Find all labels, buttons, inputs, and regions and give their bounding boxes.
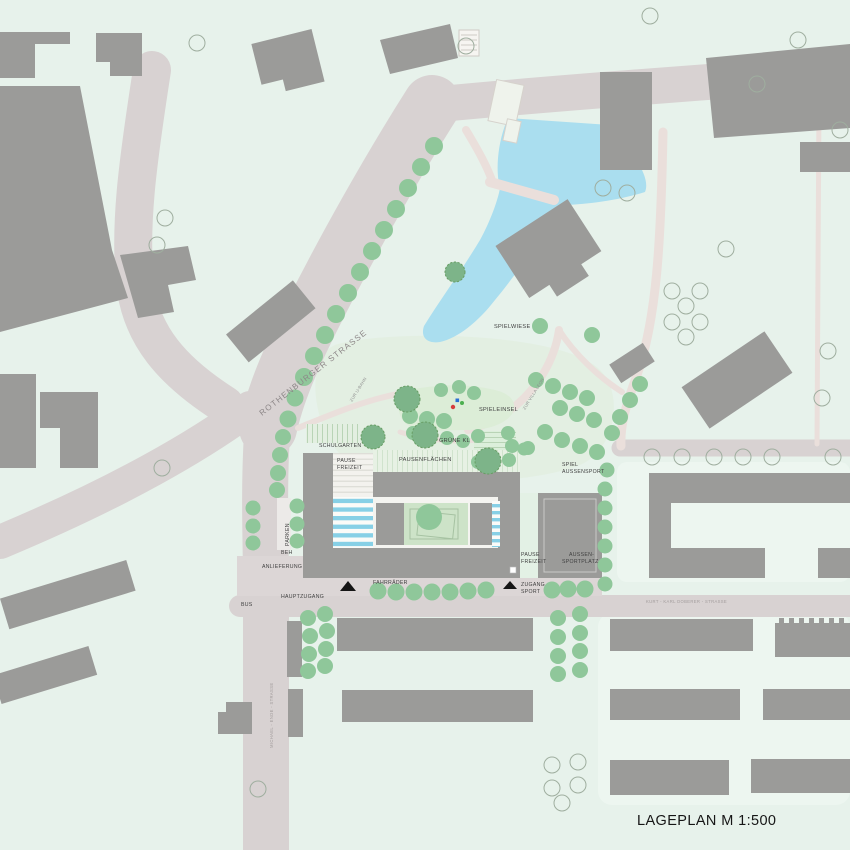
tree-icon [598,482,613,497]
tree-icon [290,517,305,532]
large-tree-icon [361,425,385,449]
tree-icon [467,386,481,400]
building [800,142,850,172]
tree-icon [569,406,585,422]
tree-icon [388,584,405,601]
tree-icon [584,327,600,343]
tree-icon [363,242,381,260]
building [288,689,303,737]
tree-icon [351,263,369,281]
tree-icon [471,429,485,443]
site-plan-map: ROTHENBURGER STRASSE KURT - KARL DOBERER… [0,0,850,850]
tree-icon [604,425,620,441]
tree-icon [550,666,566,682]
tree-icon [318,641,334,657]
tree-icon [406,584,423,601]
label-beh: BEH [281,550,293,556]
tree-icon [272,447,288,463]
building [337,618,533,651]
area-label-spielwiese: SPIELWIESE [494,324,530,330]
building [818,548,850,578]
tree-icon [317,658,333,674]
tree-icon [301,646,317,662]
label-zugang-sport-b: SPORT [521,589,541,595]
area-label-spiel-aussensport-a: SPIEL [562,462,578,468]
area-label-spiel-aussensport-b: AUSSENSPORT [562,469,605,475]
tree-icon [319,623,335,639]
street-label-kurt-karl-doberer: KURT - KARL DOBERER - STRASSE [646,599,727,604]
label-fahrraeder: FAHRRÄDER [373,579,408,586]
label-zugang-sport-a: ZUGANG [521,582,545,588]
area-label-gruene-kl: GRÜNE KL [439,437,470,444]
street-label-michael-ende: MICHAEL - ENDE - STRASSE [269,683,274,748]
building [751,759,850,793]
building [600,72,652,170]
tree-icon [425,137,443,155]
tree-icon [545,378,561,394]
tree-icon [327,305,345,323]
small-structure-ladder [459,30,479,56]
building [610,760,729,795]
plan-scale-title: LAGEPLAN M 1:500 [637,813,776,829]
tree-icon [550,648,566,664]
tree-icon [412,158,430,176]
tree-icon [300,663,316,679]
courtyard-block-west [376,503,404,545]
tree-icon [436,413,452,429]
tree-icon [537,424,553,440]
tree-icon [269,482,285,498]
small-kiosk [510,567,516,573]
schulgarten-hatch [306,424,358,443]
school-west-wing [303,453,333,578]
tree-icon [375,221,393,239]
tree-icon [280,411,297,428]
tree-icon [598,558,613,573]
tree-icon [452,380,466,394]
tree-icon [460,583,477,600]
area-label-pause-2a: PAUSE [521,552,540,558]
label-hauptzugang: HAUPTZUGANG [281,594,324,600]
area-label-schulgarten: SCHULGARTEN [319,443,361,449]
tree-icon [572,662,588,678]
tree-icon [270,465,286,481]
area-label-pause-1b: FREIZEIT [337,465,363,471]
tree-icon [612,409,628,425]
play-marker-green [460,401,464,405]
area-label-aussen-sportplatz-b: SPORTPLATZ [562,559,599,565]
building [775,618,850,657]
tree-icon [290,534,305,549]
courtyard-tree-icon [416,504,442,530]
tree-icon [532,318,548,334]
tree-icon [586,412,602,428]
large-tree-icon [412,422,438,448]
tree-icon [632,376,648,392]
tree-icon [246,536,261,551]
play-marker-blue [456,399,460,403]
large-tree-icon [475,448,501,474]
tree-icon [550,629,566,645]
area-label-aussen-sportplatz-a: AUSSEN- [569,552,594,558]
building [610,689,740,720]
tree-icon [572,606,588,622]
area-label-pause-1a: PAUSE [337,458,356,464]
area-label-spieleinsel: SPIELEINSEL [479,407,518,413]
label-anlieferung: ANLIEFERUNG [262,564,302,570]
tree-icon [598,577,613,592]
building [763,689,850,720]
tree-icon [478,582,495,599]
area-label-pause-2b: FREIZEIT [521,559,547,565]
tree-icon [572,643,588,659]
tree-icon [290,499,305,514]
building [0,374,36,468]
building [287,621,302,677]
tree-icon [424,584,441,601]
tree-icon [518,443,531,456]
tree-icon [442,584,459,601]
tree-icon [552,400,568,416]
tree-icon [550,610,566,626]
tree-icon [544,582,561,599]
building [610,619,753,651]
tree-icon [387,200,405,218]
tree-icon [317,606,333,622]
courtyard-block-east [470,503,492,545]
tree-icon [554,432,570,448]
school-glass-roof-east-stripes [492,501,500,547]
tree-icon [622,392,638,408]
pause-freizeit-strip [520,493,538,578]
tree-icon [577,581,594,598]
area-label-pausenflaechen: PAUSENFLÄCHEN [399,456,452,463]
tree-icon [579,390,595,406]
tree-icon [434,383,448,397]
large-tree-icon [445,262,465,282]
site-plan-page: ROTHENBURGER STRASSE KURT - KARL DOBERER… [0,0,850,850]
aussen-sportplatz-field [538,493,602,578]
tree-icon [505,439,519,453]
school-glass-roof-west-stripes [333,497,373,548]
label-parken: PARKEN [285,523,291,546]
tree-icon [598,520,613,535]
tree-icon [302,628,318,644]
tree-icon [275,429,291,445]
tree-icon [300,610,316,626]
tree-icon [598,539,613,554]
tree-icon [339,284,357,302]
tree-icon [572,438,588,454]
tree-icon [572,625,588,641]
large-tree-icon [394,386,420,412]
tree-icon [589,444,605,460]
tree-icon [246,519,261,534]
building [342,690,533,722]
tree-icon [502,453,516,467]
tree-icon [598,501,613,516]
tree-icon [399,179,417,197]
label-bus: BUS [241,602,253,608]
tree-icon [562,384,578,400]
tree-icon [560,581,577,598]
tree-icon [246,501,261,516]
tree-icon [501,426,515,440]
tree-icon [316,326,334,344]
play-marker-red [451,405,455,409]
school-south-wing [333,548,520,578]
building [706,44,850,138]
school-north-wing [373,472,520,497]
